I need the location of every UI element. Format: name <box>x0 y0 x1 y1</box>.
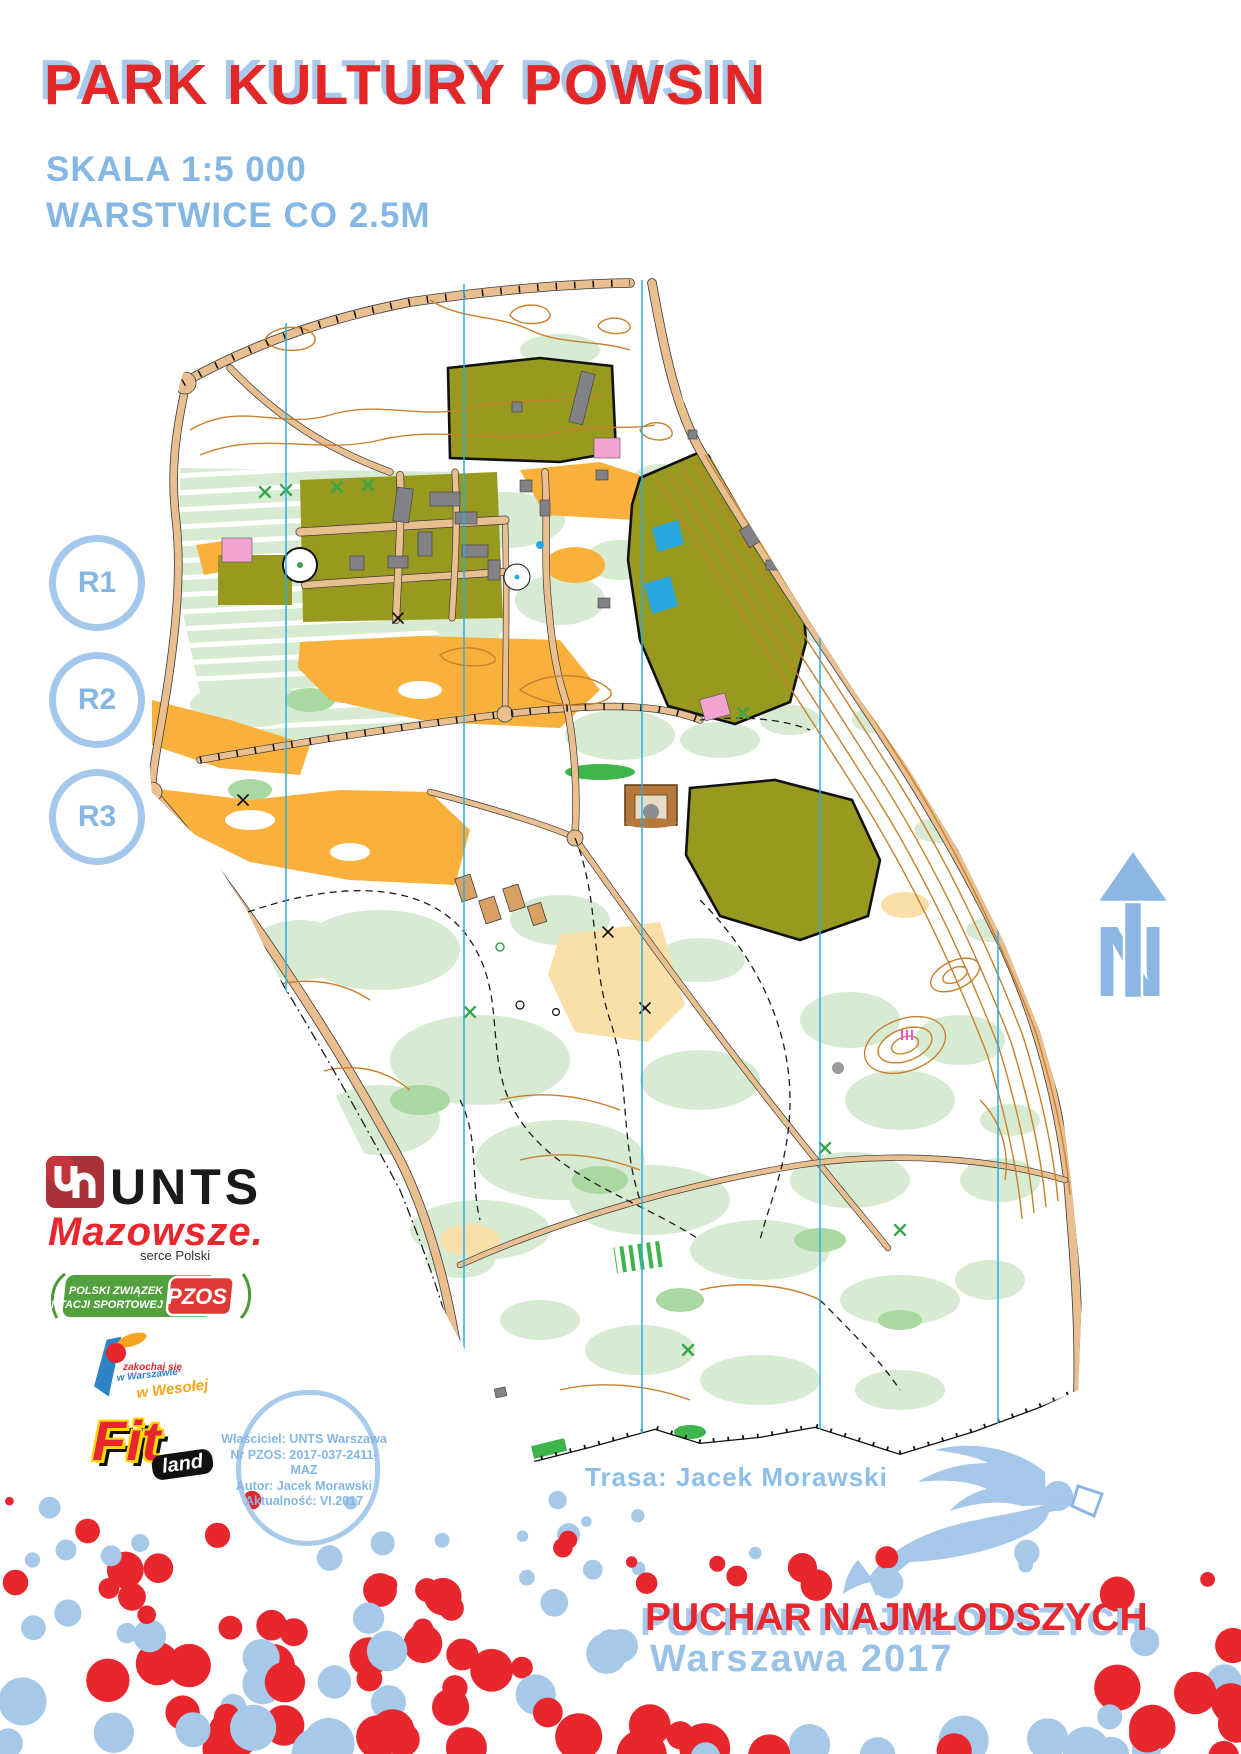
confetti-dot <box>75 1519 100 1544</box>
confetti-dot <box>1208 1741 1239 1754</box>
confetti-dot <box>519 1570 535 1586</box>
confetti-dot <box>131 1534 149 1552</box>
poster-title: PARK KULTURY POWSIN <box>44 52 767 118</box>
mermaid-hair <box>918 1446 1046 1511</box>
confetti-dot <box>318 1665 351 1698</box>
confetti-dot <box>533 1698 563 1728</box>
confetti-dot <box>548 1491 566 1509</box>
confetti-dot <box>94 1713 134 1753</box>
confetti-dot <box>379 1576 397 1594</box>
mazowsze-tagline: serce Polski <box>140 1248 210 1263</box>
route-marker-r2: R2 <box>49 652 145 748</box>
confetti-dot <box>303 1718 355 1754</box>
confetti-dot <box>873 1568 904 1599</box>
map-scale-label: SKALA 1:5 000 <box>46 150 307 190</box>
wesola-logo: zakochaj się w Warszawie w Wesołej <box>85 1328 215 1408</box>
confetti-dot <box>726 1566 747 1587</box>
confetti-dot <box>367 1631 407 1671</box>
confetti-dot <box>1097 1704 1122 1729</box>
confetti-dot <box>86 1659 129 1702</box>
confetti-dot <box>56 1539 77 1560</box>
unts-logo-text: UNTS <box>110 1158 262 1216</box>
confetti-dot <box>1014 1540 1039 1565</box>
confetti-dot <box>230 1705 276 1751</box>
confetti-dot <box>442 1675 467 1700</box>
confetti-dot <box>439 1596 464 1621</box>
confetti-dot <box>144 1553 174 1583</box>
confetti-dot <box>1094 1665 1140 1711</box>
confetti-dot <box>137 1606 156 1625</box>
confetti-dot <box>709 1556 725 1572</box>
confetti-dot <box>1174 1672 1216 1714</box>
svg-text:ORIENTACJI SPORTOWEJ: ORIENTACJI SPORTOWEJ <box>45 1299 164 1311</box>
confetti-dot <box>1215 1628 1241 1663</box>
confetti-dot <box>1129 1715 1166 1752</box>
svg-text:PZOS: PZOS <box>167 1284 227 1309</box>
confetti-dot <box>101 1545 122 1566</box>
confetti-dot <box>583 1560 603 1580</box>
confetti-dot <box>789 1724 830 1754</box>
confetti-dot <box>219 1616 243 1640</box>
mermaid-kite <box>1072 1486 1102 1516</box>
confetti-dot <box>117 1623 137 1643</box>
confetti-dot <box>629 1704 671 1746</box>
confetti-dot <box>357 1666 383 1692</box>
unts-logo-icon <box>46 1156 104 1208</box>
confetti-dot <box>559 1531 577 1549</box>
confetti-dot <box>3 1570 29 1596</box>
stamp-owner: Właściciel: UNTS Warszawa <box>218 1432 390 1448</box>
confetti-dot <box>54 1600 81 1627</box>
confetti-dot <box>133 1619 166 1652</box>
confetti-dot <box>581 1516 592 1527</box>
confetti-dot <box>511 1657 533 1679</box>
confetti-dot <box>636 1572 658 1594</box>
confetti-dot <box>555 1713 602 1754</box>
confetti-dot <box>205 1523 230 1548</box>
confetti-dot <box>860 1737 895 1754</box>
confetti-dot <box>446 1639 478 1671</box>
confetti-dot <box>413 1619 434 1640</box>
confetti-dot <box>446 1727 487 1754</box>
confetti-dot <box>265 1662 305 1702</box>
event-title: PUCHAR NAJMŁODSZYCH <box>645 1596 1148 1640</box>
stamp-number: Nr PZOS: 2017-037-2411-MAZ <box>218 1448 390 1479</box>
pzos-logo: POLSKI ZWIĄZEK ORIENTACJI SPORTOWEJ PZOS <box>45 1270 260 1322</box>
confetti-dot <box>317 1545 343 1571</box>
confetti-dot <box>39 1497 61 1519</box>
confetti-dot <box>5 1497 14 1506</box>
confetti-dot <box>99 1578 120 1599</box>
stamp-author: Autor: Jacek Morawski <box>218 1479 390 1495</box>
confetti-dot <box>631 1509 644 1522</box>
north-arrow: N <box>1094 850 1169 1018</box>
confetti-dot <box>748 1734 790 1754</box>
confetti-dot <box>118 1583 146 1611</box>
confetti-dot <box>280 1618 308 1646</box>
event-edition: Warszawa 2017 <box>650 1638 953 1681</box>
stamp-validity: Aktualność: VI.2017 <box>218 1494 390 1510</box>
confetti-dot <box>1063 1727 1110 1754</box>
confetti-dot <box>517 1530 528 1541</box>
confetti-dot <box>0 1728 23 1754</box>
fitland-logo: Fit <box>92 1408 160 1473</box>
confetti-dot <box>596 1629 624 1657</box>
confetti-dot <box>371 1531 395 1555</box>
confetti-dot <box>1200 1572 1215 1587</box>
contour-interval-label: WARSTWICE CO 2.5M <box>46 196 431 236</box>
confetti-dot <box>0 1677 47 1725</box>
confetti-dot <box>626 1556 637 1567</box>
confetti-dot <box>21 1615 46 1640</box>
confetti-dot <box>435 1533 450 1548</box>
confetti-dot <box>176 1712 211 1747</box>
confetti-dot <box>666 1721 694 1749</box>
course-credit: Trasa: Jacek Morawski <box>585 1462 888 1493</box>
confetti-dot <box>1027 1718 1068 1754</box>
route-marker-r3: R3 <box>49 769 145 865</box>
confetti-dot <box>353 1603 384 1634</box>
confetti-dot <box>875 1546 898 1569</box>
orienteering-map <box>140 260 1090 1480</box>
confetti-dot <box>168 1644 211 1687</box>
confetti-dot <box>540 1589 568 1617</box>
credits-stamp-text: Właściciel: UNTS Warszawa Nr PZOS: 2017-… <box>218 1432 390 1510</box>
svg-text:POLSKI ZWIĄZEK: POLSKI ZWIĄZEK <box>69 1285 164 1297</box>
confetti-dot <box>749 1547 762 1560</box>
confetti-dot <box>25 1552 40 1567</box>
route-marker-r1: R1 <box>49 535 145 631</box>
